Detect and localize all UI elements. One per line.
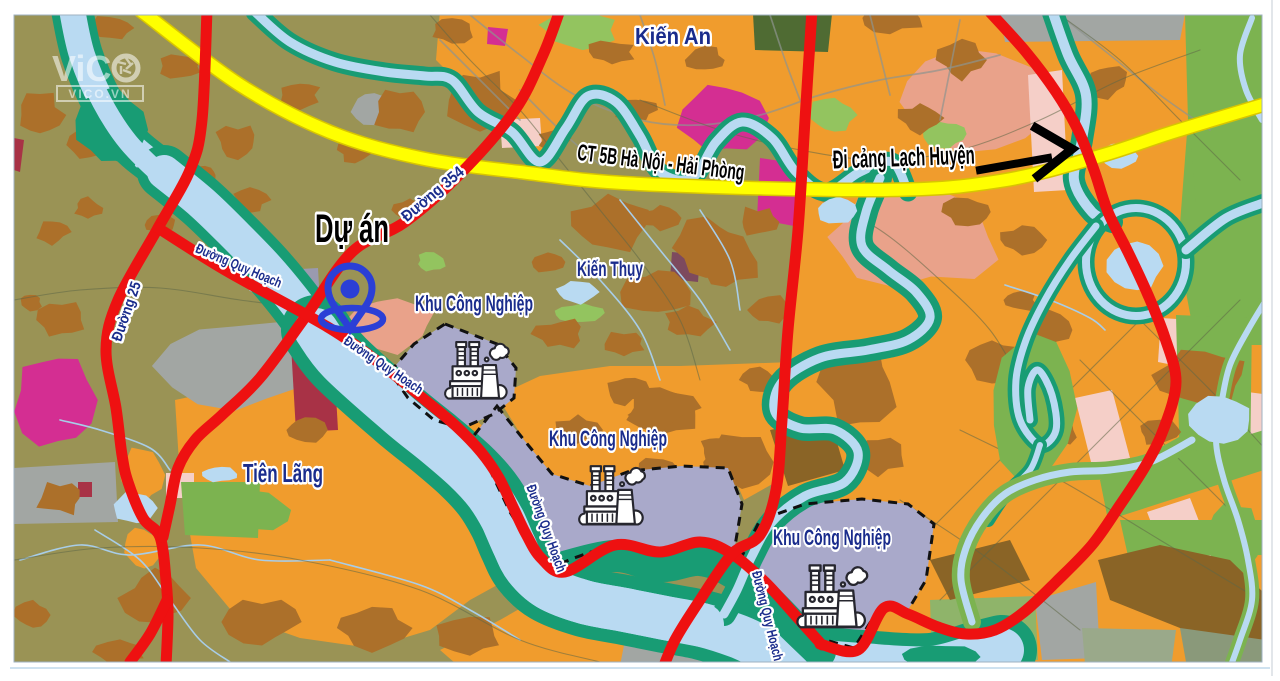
svg-text:Đi cảng Lạch Huyện: Đi cảng Lạch Huyện bbox=[832, 140, 975, 175]
svg-text:Khu Công Nghiệp: Khu Công Nghiệp bbox=[549, 426, 667, 451]
svg-text:Dự án: Dự án bbox=[315, 207, 389, 251]
svg-text:Khu Công Nghiệp: Khu Công Nghiệp bbox=[773, 525, 891, 550]
svg-text:Kiến Thụy: Kiến Thụy bbox=[577, 258, 643, 281]
svg-text:ViC: ViC bbox=[52, 48, 111, 89]
svg-text:Khu Công Nghiệp: Khu Công Nghiệp bbox=[415, 291, 533, 316]
svg-text:Tiên Lãng: Tiên Lãng bbox=[243, 458, 323, 488]
svg-text:Kiến An: Kiến An bbox=[635, 23, 711, 49]
svg-text:VICO.VN: VICO.VN bbox=[68, 87, 131, 101]
